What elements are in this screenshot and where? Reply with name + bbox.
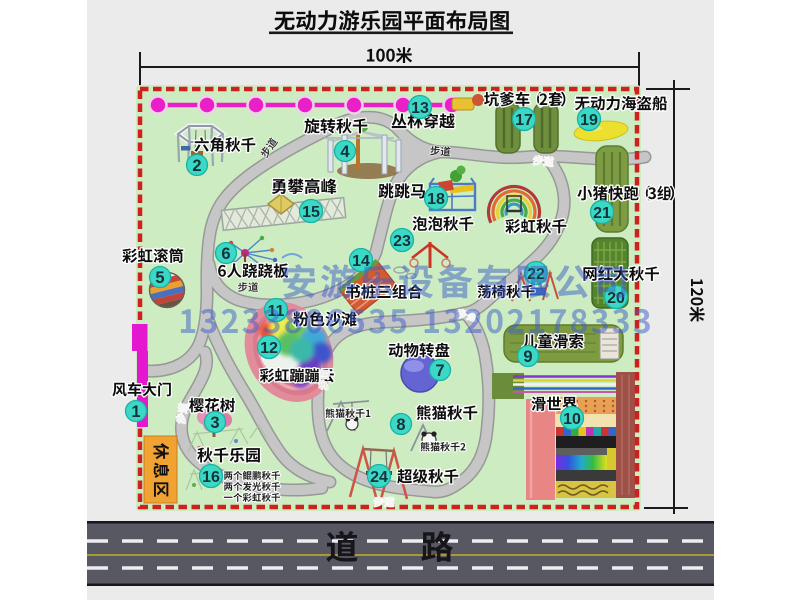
svg-text:21: 21 xyxy=(593,205,611,222)
svg-text:9: 9 xyxy=(523,348,532,366)
svg-text:6: 6 xyxy=(221,245,230,263)
svg-text:5: 5 xyxy=(155,269,164,287)
svg-text:13: 13 xyxy=(411,100,429,117)
svg-text:19: 19 xyxy=(580,112,598,129)
svg-text:2: 2 xyxy=(192,157,201,175)
svg-text:23: 23 xyxy=(393,233,411,250)
svg-text:8: 8 xyxy=(396,416,405,434)
svg-text:3: 3 xyxy=(210,414,219,432)
svg-text:17: 17 xyxy=(515,112,533,129)
svg-text:1: 1 xyxy=(131,403,140,421)
svg-text:12: 12 xyxy=(260,340,278,357)
svg-text:18: 18 xyxy=(427,191,445,208)
svg-text:16: 16 xyxy=(202,469,220,486)
svg-text:10: 10 xyxy=(563,411,581,428)
svg-text:15: 15 xyxy=(302,204,320,221)
svg-text:4: 4 xyxy=(340,143,350,161)
svg-text:7: 7 xyxy=(435,362,444,380)
svg-text:24: 24 xyxy=(370,469,388,486)
